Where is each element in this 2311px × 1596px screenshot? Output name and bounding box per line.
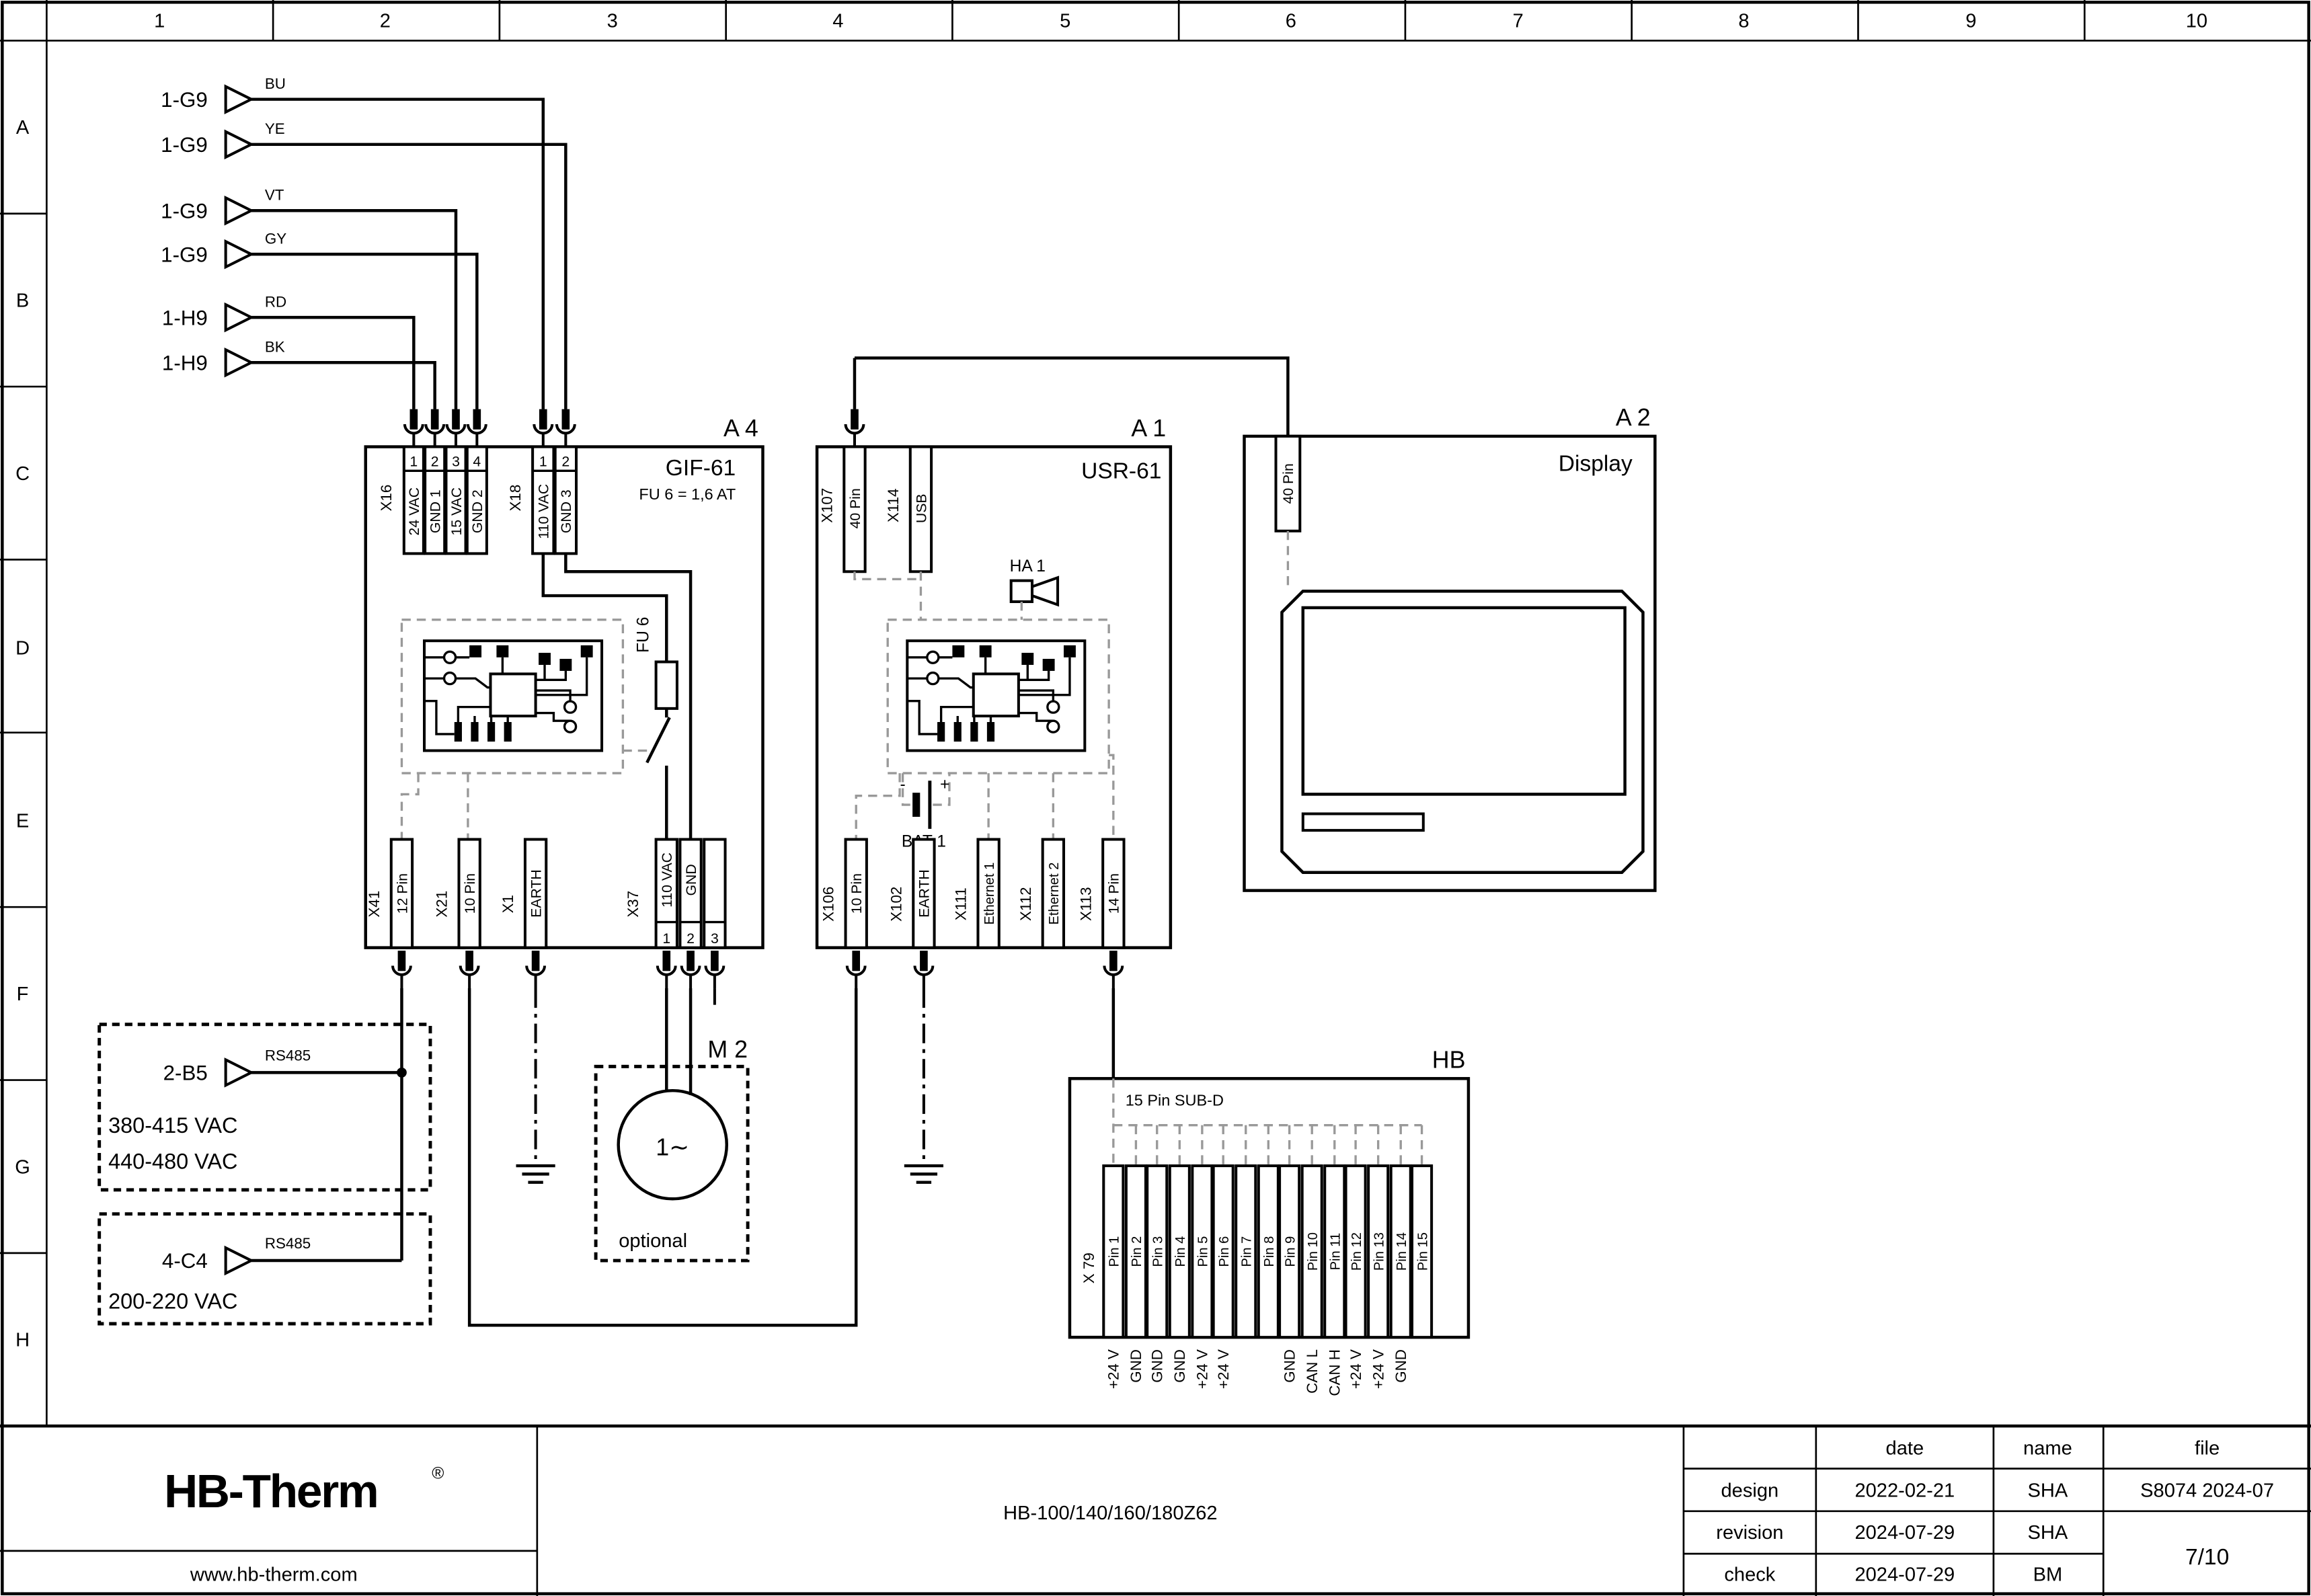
col-header-name: name [2023, 1438, 2072, 1460]
ruler-col-1: 1 [154, 10, 165, 32]
hb-pin: Pin 13 [1372, 1232, 1387, 1271]
registered-mark: ® [432, 1464, 444, 1482]
pin-label: 40 Pin [847, 488, 863, 528]
ruler-row-e: E [16, 811, 29, 832]
terminal-x21-id: X21 [434, 891, 451, 918]
a4-tag: A 4 [723, 415, 758, 442]
hb-pin: Pin 7 [1240, 1236, 1255, 1267]
design-name: SHA [2028, 1480, 2068, 1501]
a4-fuse-note: FU 6 = 1,6 AT [639, 485, 736, 503]
schematic-page: 1 2 3 4 5 6 7 8 9 10 A B C D E F G H 1-G… [0, 0, 2311, 1596]
terminal-x113-id: X113 [1077, 887, 1094, 921]
ruler-row-h: H [15, 1330, 30, 1351]
ruler-col-3: 3 [607, 10, 618, 32]
hb-signal: GND [1171, 1349, 1188, 1383]
hb-signal: +24 V [1105, 1349, 1122, 1389]
terminal-x112-id: X112 [1017, 887, 1034, 921]
pin-label: 24 VAC [406, 487, 422, 536]
pin-number: 1 [409, 454, 418, 470]
ruler-row-a: A [16, 117, 30, 138]
ruler-col-7: 7 [1513, 10, 1524, 32]
voltage-range: 380-415 VAC [108, 1113, 237, 1138]
pin-number: 3 [452, 454, 460, 470]
bus-label: RS485 [265, 1047, 311, 1064]
source-ref: 4-C4 [162, 1249, 208, 1273]
pin-label: USB [913, 493, 929, 523]
terminal-x37-id: X37 [625, 891, 641, 918]
pin-label: 14 Pin [1106, 873, 1122, 914]
voltage-range: 440-480 VAC [108, 1150, 237, 1174]
row-label-revision: revision [1716, 1522, 1783, 1544]
input-ref-1: 1-G9 [161, 88, 208, 112]
ruler-col-6: 6 [1286, 10, 1296, 32]
pin-label: 15 VAC [448, 487, 465, 536]
pin-label: EARTH [528, 869, 544, 918]
pin-number: 2 [431, 454, 439, 470]
input-ref-3: 1-G9 [161, 199, 208, 223]
hb-conn-title: 15 Pin SUB-D [1126, 1092, 1224, 1109]
hb-pin: Pin 1 [1107, 1236, 1122, 1267]
a1-device: USR-61 [1081, 459, 1161, 484]
row-label-check: check [1724, 1564, 1775, 1586]
pin-label: 110 VAC [659, 852, 675, 908]
ruler-row-d: D [15, 637, 30, 659]
wire-color-ye: YE [265, 120, 285, 137]
terminal-a2-40pin: 40 Pin [1276, 436, 1300, 531]
battery-plus-sign: + [940, 776, 949, 794]
source-ref: 2-B5 [163, 1062, 208, 1085]
hb-pin: Pin 10 [1306, 1232, 1321, 1271]
ruler-col-2: 2 [380, 10, 391, 32]
pin-number: 2 [561, 454, 570, 470]
hb-signal: +24 V [1370, 1349, 1387, 1389]
m2-tag: M 2 [707, 1036, 748, 1063]
check-name: BM [2033, 1564, 2063, 1586]
pin-number: 1 [662, 930, 670, 947]
pin-label: 110 VAC [536, 484, 552, 539]
hb-pin: Pin 3 [1151, 1236, 1166, 1267]
ruler-col-10: 10 [2186, 10, 2207, 32]
pin-number: 2 [687, 930, 695, 947]
pin-number: 3 [711, 930, 719, 947]
hb-pin: Pin 4 [1173, 1236, 1188, 1267]
motor-phase-symbol: 1∼ [656, 1133, 689, 1160]
wire-color-rd: RD [265, 293, 286, 310]
input-ref-6: 1-H9 [162, 351, 208, 374]
junction-dot [397, 1068, 407, 1078]
voltage-range: 200-220 VAC [108, 1289, 237, 1314]
pin-label: GND 3 [558, 489, 574, 533]
design-date: 2022-02-21 [1854, 1480, 1955, 1501]
hb-pin: Pin 2 [1130, 1236, 1144, 1267]
hb-pin: Pin 14 [1395, 1232, 1409, 1271]
pin-label: 40 Pin [1280, 463, 1296, 504]
hb-signal: GND [1393, 1349, 1409, 1383]
hb-pin: Pin 12 [1349, 1232, 1364, 1271]
pin-label: EARTH [916, 869, 933, 918]
pin-label: GND 2 [469, 489, 485, 533]
wire-color-gy: GY [265, 230, 286, 247]
input-ref-4: 1-G9 [161, 243, 208, 266]
company-logo: HB-Therm [164, 1465, 377, 1517]
hb-signal: CAN H [1327, 1349, 1343, 1396]
wire-color-bk: BK [265, 339, 285, 356]
pin-label: Ethernet 1 [982, 863, 997, 925]
hb-pin: Pin 6 [1217, 1236, 1232, 1267]
ruler-col-4: 4 [832, 10, 843, 32]
terminal-x114-id: X114 [885, 489, 902, 523]
ruler-row-f: F [17, 984, 29, 1005]
pin-number: 1 [539, 454, 547, 470]
a2-device: Display [1559, 451, 1633, 476]
file-value: S8074 2024-07 [2140, 1480, 2274, 1501]
ruler-row-c: C [15, 463, 30, 485]
ruler-row-b: B [16, 290, 29, 311]
terminal-x16-id: X16 [378, 485, 395, 512]
a2-tag: A 2 [1616, 404, 1651, 431]
block-a1: A 1 USR-61 X107 40 Pin X114 USB HA 1 - +… [817, 409, 1171, 988]
block-a2: A 2 Display 40 Pin [1245, 404, 1655, 890]
hb-pin: Pin 8 [1262, 1236, 1277, 1267]
check-date: 2024-07-29 [1854, 1564, 1955, 1586]
sheet-number: 7/10 [2185, 1545, 2229, 1570]
hb-signal: GND [1281, 1349, 1298, 1383]
revision-name: SHA [2028, 1522, 2068, 1544]
row-label-design: design [1721, 1480, 1779, 1501]
wire-color-bu: BU [265, 75, 286, 92]
hb-tag: HB [1432, 1047, 1466, 1074]
hb-signal: +24 V [1347, 1349, 1364, 1389]
hb-signal: CAN L [1304, 1349, 1321, 1394]
terminal-x1-id: X1 [500, 895, 516, 913]
hb-x79-id: X 79 [1081, 1252, 1097, 1283]
input-ref-2: 1-G9 [161, 133, 208, 157]
block-a4: A 4 GIF-61 FU 6 = 1,6 AT X16 1 2 3 4 24 … [366, 415, 763, 988]
pin-label: GND [683, 864, 699, 895]
ruler-col-9: 9 [1965, 10, 1976, 32]
pin-label: Ethernet 2 [1047, 863, 1062, 925]
input-ref-5: 1-H9 [162, 306, 208, 329]
bus-label: RS485 [265, 1235, 311, 1252]
hb-pin: Pin 11 [1329, 1233, 1343, 1271]
horn-label: HA 1 [1010, 557, 1046, 575]
battery-minus-plate [912, 793, 920, 817]
pin-label: 10 Pin [849, 873, 865, 914]
ruler-row-g: G [15, 1156, 30, 1178]
pin-number: 4 [473, 454, 481, 470]
hb-pin: Pin 9 [1283, 1236, 1298, 1267]
fuse-label: FU 6 [634, 617, 652, 653]
hb-pin: Pin 5 [1196, 1236, 1211, 1267]
pin-label: 10 Pin [462, 873, 478, 914]
drawing-title: HB-100/140/160/180Z62 [1003, 1503, 1217, 1524]
pin-label: 12 Pin [394, 873, 410, 914]
hb-signal: GND [1149, 1349, 1166, 1383]
a4-device: GIF-61 [666, 456, 736, 481]
m2-note: optional [619, 1230, 687, 1252]
hb-signal: GND [1128, 1349, 1144, 1383]
terminal-x106-id: X106 [820, 887, 837, 922]
ruler-col-8: 8 [1738, 10, 1749, 32]
hb-signal: +24 V [1194, 1349, 1211, 1389]
pcb-icon [907, 641, 1085, 750]
a1-tag: A 1 [1131, 415, 1166, 442]
col-header-date: date [1886, 1438, 1924, 1460]
hb-signal: +24 V [1215, 1349, 1232, 1389]
terminal-x107-id: X107 [818, 488, 835, 523]
terminal-x102-id: X102 [888, 887, 904, 922]
company-website: www.hb-therm.com [190, 1564, 358, 1586]
wire-color-vt: VT [265, 187, 284, 204]
pin-label: GND 1 [428, 489, 444, 533]
terminal-x18-id: X18 [507, 485, 524, 512]
revision-date: 2024-07-29 [1854, 1522, 1955, 1544]
hb-pin: Pin 15 [1415, 1232, 1430, 1271]
pcb-icon [424, 641, 602, 750]
col-header-file: file [2195, 1438, 2220, 1460]
terminal-x111-id: X111 [953, 887, 970, 920]
terminal-x41-id: X41 [366, 891, 383, 918]
ruler-col-5: 5 [1060, 10, 1070, 32]
